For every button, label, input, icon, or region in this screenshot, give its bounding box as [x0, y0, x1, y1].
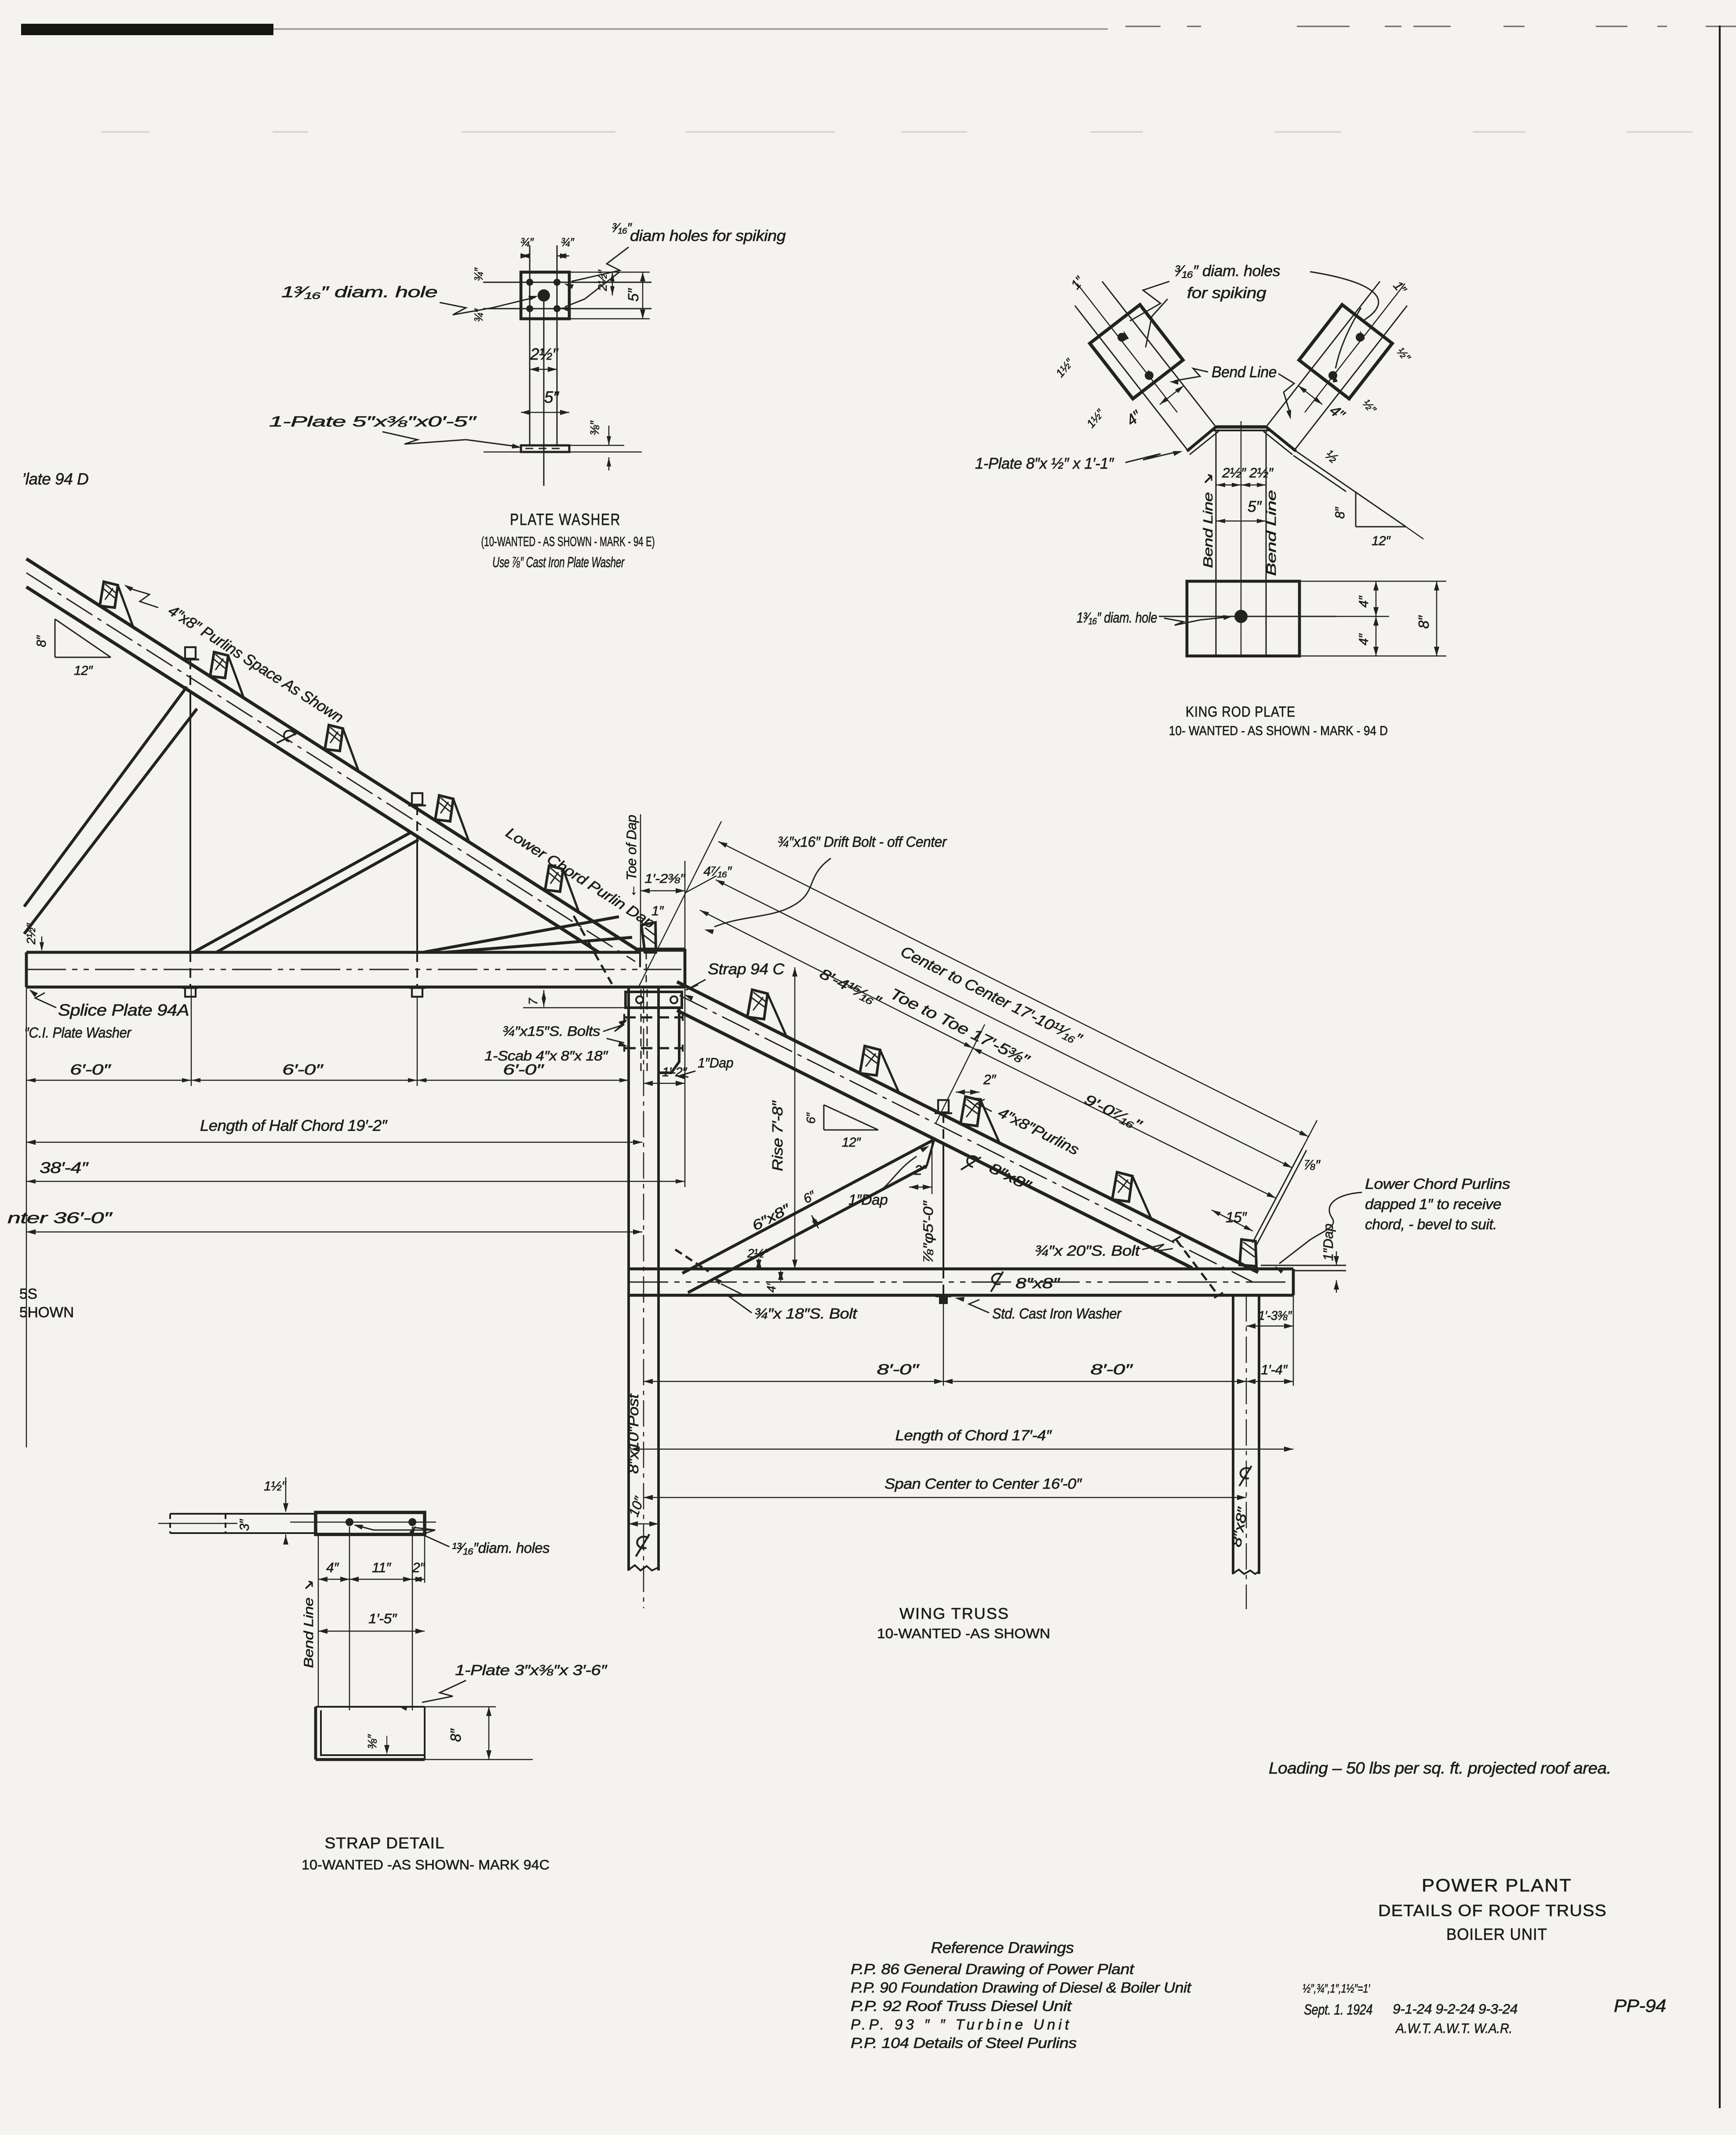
svg-text:1′-2⅜″: 1′-2⅜″ [644, 872, 686, 886]
svg-text:BOILER UNIT: BOILER UNIT [1446, 1925, 1547, 1943]
svg-text:½″: ½″ [1360, 397, 1379, 416]
svg-text:Strap 94 C: Strap 94 C [708, 961, 785, 978]
svg-text:Std. Cast Iron Washer: Std. Cast Iron Washer [992, 1306, 1122, 1322]
svg-text:STRAP DETAIL: STRAP DETAIL [325, 1835, 445, 1852]
svg-text:← Toe of Dap: ← Toe of Dap [623, 815, 639, 898]
svg-text:Center to Center 17′-10​¹¹⁄₁₆: Center to Center 17′-10​¹¹⁄₁₆″ [898, 943, 1085, 1048]
svg-text:9′-0⁷⁄₁₆″: 9′-0⁷⁄₁₆″ [1081, 1091, 1145, 1134]
svg-text:¹³⁄₁₆″diam. holes: ¹³⁄₁₆″diam. holes [452, 1540, 550, 1556]
svg-text:for spiking: for spiking [1187, 284, 1267, 302]
svg-text:1′-3⅜″: 1′-3⅜″ [1258, 1309, 1292, 1323]
svg-text:8′-0″: 8′-0″ [1091, 1362, 1133, 1378]
svg-text:⅜″: ⅜″ [365, 1734, 379, 1749]
svg-text:P.P. 90 Foundation Drawing of: P.P. 90 Foundation Drawing of Diesel & B… [851, 1980, 1192, 1996]
svg-text:6′-0″: 6′-0″ [70, 1062, 111, 1078]
svg-text:8″x10″Post: 8″x10″Post [626, 1393, 642, 1474]
svg-text:P.P. 86 General Drawing of Po: P.P. 86 General Drawing of Power Plant [851, 1961, 1135, 1978]
svg-text:chord, - bevel to suit.: chord, - bevel to suit. [1365, 1217, 1497, 1233]
svg-text:⅜″: ⅜″ [587, 420, 601, 435]
svg-text:1′-5″: 1′-5″ [368, 1610, 397, 1626]
svg-text:2″: 2″ [412, 1559, 426, 1575]
svg-text:1-Scab 4″x 8″x 18″: 1-Scab 4″x 8″x 18″ [484, 1048, 609, 1064]
svg-text:DETAILS OF ROOF TRUSS: DETAILS OF ROOF TRUSS [1378, 1902, 1607, 1920]
svg-text:PP-94: PP-94 [1614, 1996, 1666, 2016]
svg-text:1-Plate 5″x⅜″x0′-5″: 1-Plate 5″x⅜″x0′-5″ [269, 414, 477, 430]
svg-text:Loading – 50 lbs per sq. ft. p: Loading – 50 lbs per sq. ft. projected r… [1269, 1759, 1611, 1777]
svg-text:1½″: 1½″ [264, 1479, 287, 1494]
svg-text:Bend Line: Bend Line [1264, 490, 1279, 576]
svg-text:1″Dap: 1″Dap [848, 1192, 888, 1208]
svg-text:Reference Drawings: Reference Drawings [931, 1939, 1074, 1956]
svg-text:¾″: ¾″ [520, 236, 535, 249]
svg-text:4″x8″Purlins: 4″x8″Purlins [995, 1104, 1081, 1159]
svg-text:¾″: ¾″ [560, 236, 575, 249]
svg-text:Splice Plate 94A: Splice Plate 94A [58, 1001, 189, 1019]
svg-text:1³⁄₁₆″ diam. hole: 1³⁄₁₆″ diam. hole [1077, 610, 1157, 626]
svg-text:8′-4¹⁵⁄₁₆″: 8′-4¹⁵⁄₁₆″ [817, 965, 884, 1010]
svg-text:6″: 6″ [804, 1112, 818, 1124]
svg-text:10-WANTED -AS SHOWN: 10-WANTED -AS SHOWN [877, 1625, 1050, 1641]
svg-text:Bend Line: Bend Line [1212, 364, 1277, 381]
svg-text:8″: 8″ [34, 635, 49, 647]
svg-text:6″x8″: 6″x8″ [749, 1200, 793, 1234]
svg-text:A.W.T. A.W.T. W.A.R.: A.W.T. A.W.T. W.A.R. [1395, 2020, 1512, 2036]
svg-text:10-WANTED -AS SHOWN- MARK 94C: 10-WANTED -AS SHOWN- MARK 94C [302, 1857, 550, 1873]
svg-text:1′-2″: 1′-2″ [662, 1065, 688, 1079]
svg-text:2″: 2″ [983, 1071, 997, 1087]
svg-text:P.P. 93 ″ ″: P.P. 93 ″ ″ Turbine Unit [851, 2017, 1070, 2033]
svg-text:1½″: 1½″ [1053, 356, 1077, 380]
svg-text:6′-0″: 6′-0″ [503, 1062, 544, 1078]
svg-text:KING ROD PLATE: KING ROD PLATE [1186, 704, 1296, 720]
svg-text:2½″: 2½″ [24, 923, 38, 945]
svg-text:4⁷⁄₁₆″: 4⁷⁄₁₆″ [703, 863, 732, 879]
svg-text:¾″x16″ Drift Bolt - off Center: ¾″x16″ Drift Bolt - off Center [777, 834, 947, 850]
svg-text:¾″x 20″S. Bolt: ¾″x 20″S. Bolt [1034, 1243, 1141, 1259]
svg-text:9-1-24 9-2-24 9-3-24: 9-1-24 9-2-24 9-3-24 [1393, 2001, 1518, 2017]
svg-text:4″: 4″ [326, 1559, 339, 1575]
svg-text:12″: 12″ [842, 1135, 861, 1150]
svg-text:8″x8″: 8″x8″ [1228, 1505, 1251, 1548]
svg-text:dapped 1″ to receive: dapped 1″ to receive [1365, 1196, 1501, 1213]
svg-text:2½″: 2½″ [595, 270, 609, 291]
svg-text:8″: 8″ [1416, 615, 1432, 629]
svg-text:1″: 1″ [1390, 278, 1409, 297]
svg-text:(10-WANTED - AS SHOWN - MARK -: (10-WANTED - AS SHOWN - MARK - 94 E) [481, 534, 655, 549]
svg-text:¾″x15″S. Bolts: ¾″x15″S. Bolts [502, 1023, 601, 1039]
svg-text:6′-0″: 6′-0″ [282, 1062, 324, 1078]
svg-text:8″x8″: 8″x8″ [986, 1160, 1034, 1195]
svg-text:Lower Chord Purlins: Lower Chord Purlins [1365, 1176, 1510, 1192]
svg-text:4″: 4″ [764, 1281, 778, 1293]
svg-text:38′-4″: 38′-4″ [40, 1159, 89, 1177]
svg-text:diam holes for spiking: diam holes for spiking [630, 227, 786, 244]
svg-text:1-Plate 3″x⅜″x 3′-6″: 1-Plate 3″x⅜″x 3′-6″ [455, 1662, 608, 1679]
svg-text:8′-0″: 8′-0″ [877, 1362, 920, 1378]
svg-text:Bend Line ↘: Bend Line ↘ [302, 1580, 316, 1668]
svg-text:12″: 12″ [74, 663, 93, 678]
svg-text:1³⁄₁₆″ diam. hole: 1³⁄₁₆″ diam. hole [281, 284, 437, 301]
svg-text:Span Center to Center 16′-0″: Span Center to Center 16′-0″ [884, 1476, 1082, 1492]
svg-text:Bend Line ↘: Bend Line ↘ [1201, 474, 1216, 568]
svg-text:1-Plate 8″x ½″ x 1′-1″: 1-Plate 8″x ½″ x 1′-1″ [975, 455, 1114, 472]
svg-text:POWER PLANT: POWER PLANT [1422, 1875, 1572, 1895]
svg-text:4″: 4″ [1357, 633, 1371, 645]
svg-text:Rise 7′-8″: Rise 7′-8″ [770, 1100, 786, 1171]
svg-text:1½″: 1½″ [1084, 406, 1107, 430]
svg-text:nter 36′-0″: nter 36′-0″ [7, 1210, 113, 1227]
svg-text:2½″: 2½″ [1222, 465, 1247, 481]
svg-text:³⁄₁₆″: ³⁄₁₆″ [612, 221, 632, 235]
svg-text:3″: 3″ [237, 1519, 252, 1531]
svg-text:1″: 1″ [1068, 273, 1087, 292]
svg-text:5″: 5″ [1248, 498, 1262, 515]
svg-text:2½″: 2½″ [530, 345, 559, 363]
svg-text:2½″: 2½″ [747, 1246, 769, 1260]
svg-text:1″Dap: 1″Dap [698, 1055, 733, 1071]
svg-text:PLATE WASHER: PLATE WASHER [510, 510, 621, 528]
svg-text:Length of Chord 17′-4″: Length of Chord 17′-4″ [895, 1428, 1052, 1444]
svg-text:¾″x 18″S. Bolt: ¾″x 18″S. Bolt [754, 1306, 858, 1322]
svg-text:⅞″φ5′-0″: ⅞″φ5′-0″ [920, 1200, 936, 1263]
svg-text:8″x8″: 8″x8″ [1015, 1275, 1060, 1292]
svg-text:5″: 5″ [544, 388, 560, 406]
svg-text:P.P. 92 Roof Truss Diesel Uni: P.P. 92 Roof Truss Diesel Unit [851, 1998, 1073, 2015]
svg-text:5″: 5″ [626, 288, 642, 302]
svg-text:Length of Half Chord 19′-2″: Length of Half Chord 19′-2″ [200, 1117, 388, 1134]
svg-text:½″: ½″ [1394, 345, 1413, 364]
svg-text:″C.I. Plate Washer: ″C.I. Plate Washer [24, 1025, 132, 1041]
svg-text:5HOWN: 5HOWN [19, 1304, 74, 1321]
svg-text:³⁄₁₆″ diam. holes: ³⁄₁₆″ diam. holes [1175, 262, 1280, 280]
svg-text:¾″: ¾″ [472, 267, 485, 281]
svg-text:P.P. 104 Details of Steel Pu: P.P. 104 Details of Steel Purlins [851, 2035, 1077, 2051]
svg-text:5S: 5S [19, 1286, 37, 1302]
svg-text:Sept. 1. 1924: Sept. 1. 1924 [1304, 2002, 1372, 2018]
svg-text:4″: 4″ [1123, 407, 1145, 429]
svg-text:11″: 11″ [372, 1559, 392, 1575]
svg-text:10- WANTED - AS SHOWN - MARK -: 10- WANTED - AS SHOWN - MARK - 94 D [1169, 724, 1388, 738]
svg-text:½: ½ [1322, 447, 1341, 466]
svg-text:8″: 8″ [448, 1728, 464, 1742]
svg-text:⅞″: ⅞″ [1304, 1157, 1321, 1173]
svg-text:WING TRUSS: WING TRUSS [899, 1605, 1009, 1622]
svg-text:2″: 2″ [914, 1162, 928, 1178]
svg-text:2½″: 2½″ [1249, 465, 1274, 481]
svg-text:8″: 8″ [1333, 506, 1347, 519]
svg-text:Use ⅞″ Cast Iron Plate Washer: Use ⅞″ Cast Iron Plate Washer [492, 554, 625, 571]
svg-text:12″: 12″ [1372, 534, 1391, 548]
svg-text:1′-4″: 1′-4″ [1261, 1362, 1288, 1377]
svg-text:15″: 15″ [1226, 1210, 1247, 1226]
svg-text:4″: 4″ [1357, 595, 1371, 608]
svg-text:½″,¾″,1″,1½″=1′: ½″,¾″,1″,1½″=1′ [1303, 1981, 1371, 1995]
svg-text:’late 94 D: ’late 94 D [22, 470, 88, 488]
svg-text:7: 7 [526, 998, 540, 1005]
